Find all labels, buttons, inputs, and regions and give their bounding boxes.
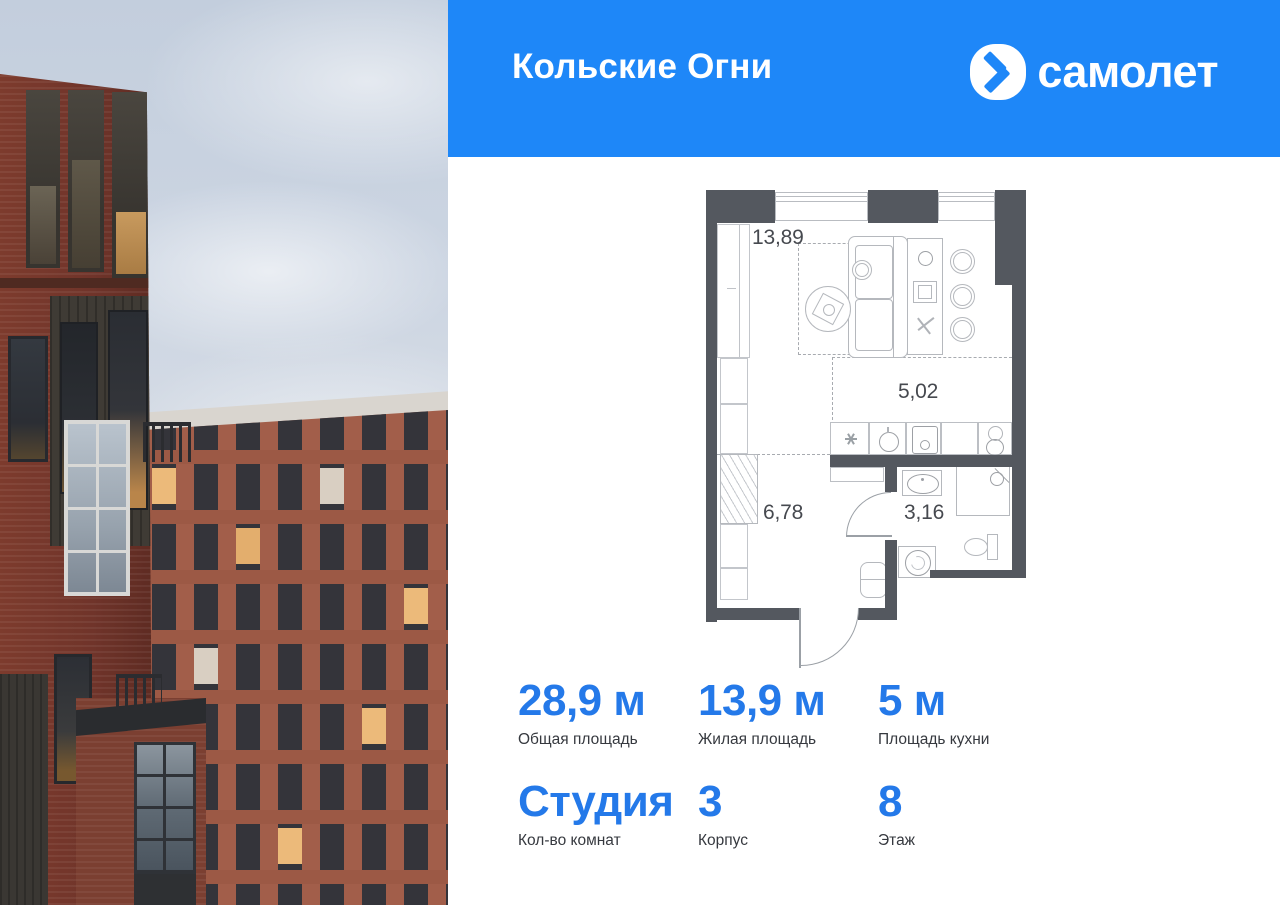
window-base <box>134 874 196 905</box>
sofa <box>848 236 908 358</box>
facade-panel <box>26 90 60 268</box>
bathroom-sink <box>902 470 942 496</box>
stat-building: 3 Корпус <box>698 779 878 880</box>
project-title: Кольские Огни <box>512 47 772 87</box>
kitchen-sink <box>869 422 906 455</box>
stat-label: Корпус <box>698 832 878 850</box>
plan-wall <box>706 608 799 620</box>
entry-door-arc <box>801 608 859 666</box>
building-photo <box>0 0 448 905</box>
lit-window <box>116 212 146 274</box>
stat-label: Кол-во комнат <box>518 832 698 850</box>
stat-value: 3 <box>698 779 878 825</box>
stat-value: 5 м <box>878 678 1078 724</box>
brand-logo: самолет <box>970 43 1218 101</box>
stat-label: Площадь кухни <box>878 731 1078 749</box>
stat-value: 8 <box>878 779 1078 825</box>
round-table <box>805 286 851 332</box>
room-area-label: 5,02 <box>898 380 938 404</box>
ottoman <box>860 562 887 598</box>
throw-blanket <box>852 260 872 280</box>
stat-total-area: 28,9 м Общая площадь <box>518 678 698 779</box>
stat-label: Этаж <box>878 832 1078 850</box>
tv <box>913 281 937 303</box>
stat-kitchen-area: 5 м Площадь кухни <box>878 678 1078 779</box>
mid-building-block <box>76 698 206 905</box>
media-console <box>907 238 943 355</box>
plan-wall <box>858 608 897 620</box>
plan-wall <box>885 467 897 492</box>
stool <box>950 317 975 342</box>
apartment-stats: 28,9 м Общая площадь 13,9 м Жилая площад… <box>518 678 1078 880</box>
hob <box>978 422 1012 455</box>
stat-label: Общая площадь <box>518 731 698 749</box>
room-area-label: 3,16 <box>904 501 944 525</box>
bathroom-door-leaf <box>846 535 892 537</box>
window <box>8 336 48 462</box>
counter-return <box>830 467 884 482</box>
lamp <box>918 251 933 266</box>
brand-name: самолет <box>1037 44 1218 100</box>
facade-panel <box>68 90 104 272</box>
stat-value: Студия <box>518 779 698 825</box>
plant-icon <box>913 315 937 345</box>
large-window <box>134 742 196 874</box>
burner-icon <box>845 433 857 445</box>
window <box>30 186 56 264</box>
room-area-label: 6,78 <box>763 501 803 525</box>
balcony-railing <box>143 422 191 462</box>
wardrobe <box>720 454 758 524</box>
window <box>72 160 100 268</box>
stool <box>950 284 975 309</box>
samolet-arrow-icon <box>970 44 1026 100</box>
stat-living-area: 13,9 м Жилая площадь <box>698 678 878 779</box>
floor-plan: 13,89 5,02 6,78 3,16 <box>706 190 1026 622</box>
kitchen-counter <box>830 422 869 455</box>
large-window <box>64 420 130 596</box>
window <box>775 192 868 221</box>
kitchen-counter <box>941 422 978 455</box>
listing-card: Кольские Огни самолет <box>0 0 1280 905</box>
plan-wall <box>885 540 897 610</box>
plan-wall <box>930 570 1026 578</box>
oven <box>906 422 941 455</box>
plan-wall <box>1012 190 1026 578</box>
cabinet <box>720 404 748 454</box>
room-area-label: 13,89 <box>752 226 804 250</box>
plan-wall <box>830 455 1019 467</box>
cabinet <box>720 568 748 600</box>
plan-wall <box>868 190 938 223</box>
stat-value: 28,9 м <box>518 678 698 724</box>
window <box>938 192 995 221</box>
facade-panel <box>112 92 150 278</box>
facade-ledge <box>0 278 153 288</box>
stool <box>950 249 975 274</box>
shower <box>956 466 1010 516</box>
balcony-railing <box>116 674 162 710</box>
wood-cladding <box>0 674 48 905</box>
cabinet <box>720 358 748 404</box>
cabinet <box>720 524 748 568</box>
toilet <box>964 538 988 556</box>
toilet-tank <box>987 534 998 560</box>
header: Кольские Огни самолет <box>448 0 1280 157</box>
bathroom-door-arc <box>846 492 891 537</box>
plan-wall <box>706 190 717 622</box>
stat-rooms: Студия Кол-во комнат <box>518 779 698 880</box>
icon-stroke <box>984 67 1011 94</box>
stat-value: 13,9 м <box>698 678 878 724</box>
plan-wall <box>706 190 775 223</box>
stat-label: Жилая площадь <box>698 731 878 749</box>
full-height-window <box>717 224 750 358</box>
stat-floor: 8 Этаж <box>878 779 1078 880</box>
